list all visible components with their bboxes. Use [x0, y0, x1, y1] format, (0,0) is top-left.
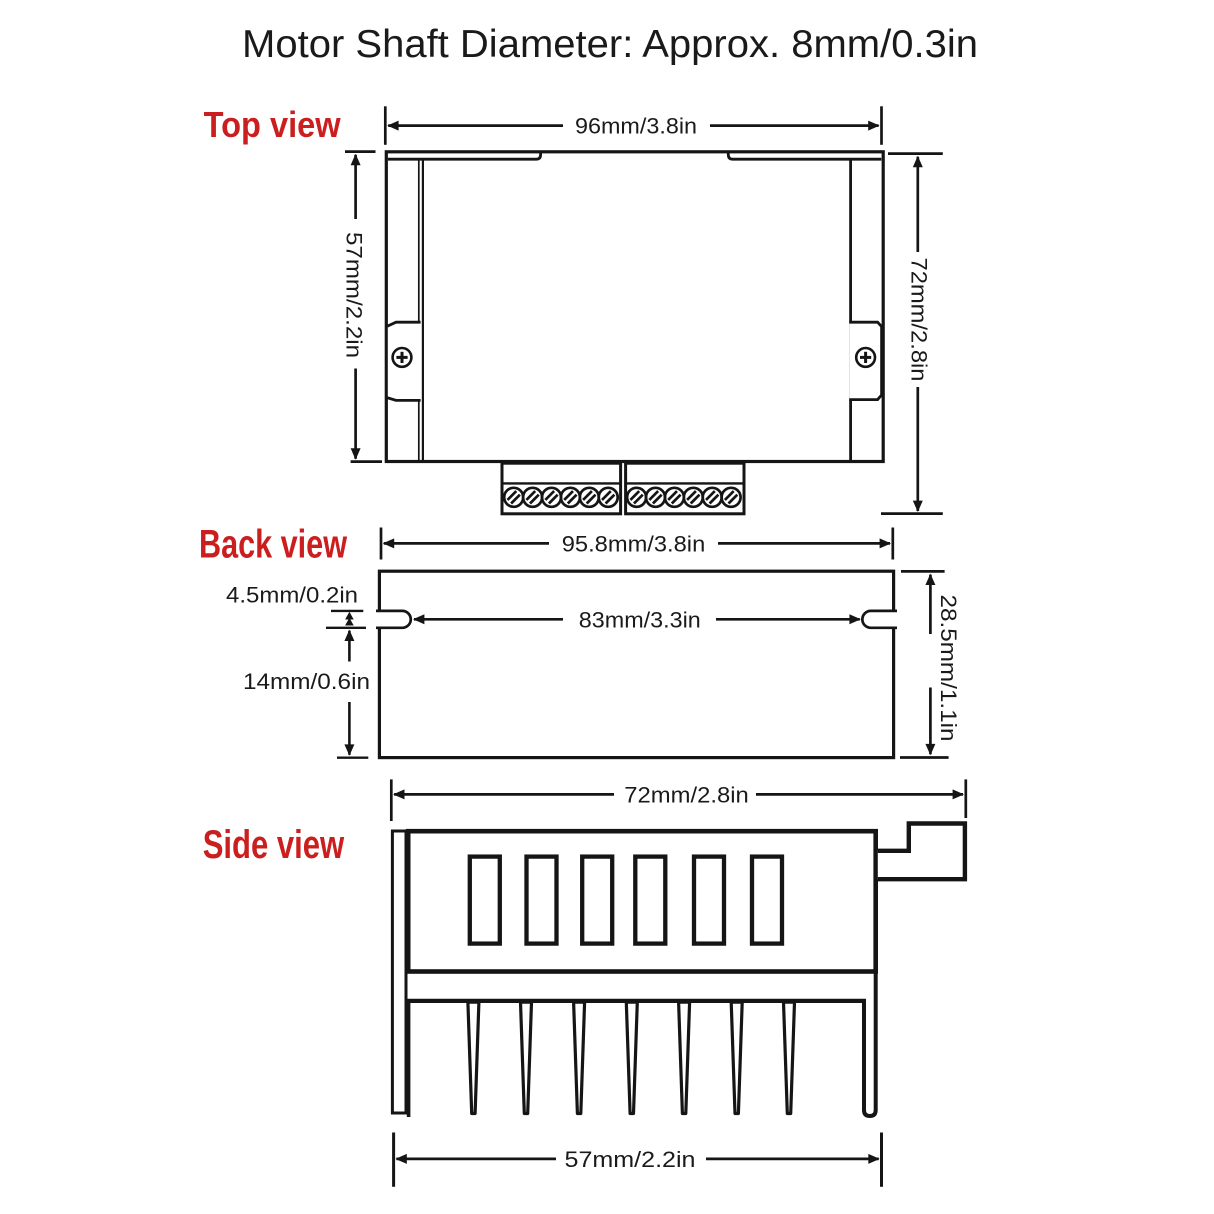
svg-text:Side view: Side view: [203, 823, 345, 867]
svg-text:72mm/2.8in: 72mm/2.8in: [907, 258, 932, 382]
svg-text:57mm/2.2in: 57mm/2.2in: [565, 1147, 696, 1172]
svg-text:4.5mm/0.2in: 4.5mm/0.2in: [226, 583, 358, 608]
svg-text:14mm/0.6in: 14mm/0.6in: [243, 669, 370, 694]
svg-text:Motor Shaft Diameter: Approx.: Motor Shaft Diameter: Approx. 8mm/0.3in: [242, 23, 978, 66]
svg-text:Back view: Back view: [199, 523, 347, 567]
svg-text:83mm/3.3in: 83mm/3.3in: [579, 607, 701, 632]
svg-text:96mm/3.8in: 96mm/3.8in: [575, 114, 697, 139]
svg-text:72mm/2.8in: 72mm/2.8in: [624, 782, 749, 807]
svg-text:28.5mm/1.1in: 28.5mm/1.1in: [936, 595, 961, 742]
svg-text:95.8mm/3.8in: 95.8mm/3.8in: [562, 531, 706, 556]
svg-text:57mm/2.2in: 57mm/2.2in: [342, 232, 367, 358]
svg-text:Top view: Top view: [204, 104, 342, 145]
